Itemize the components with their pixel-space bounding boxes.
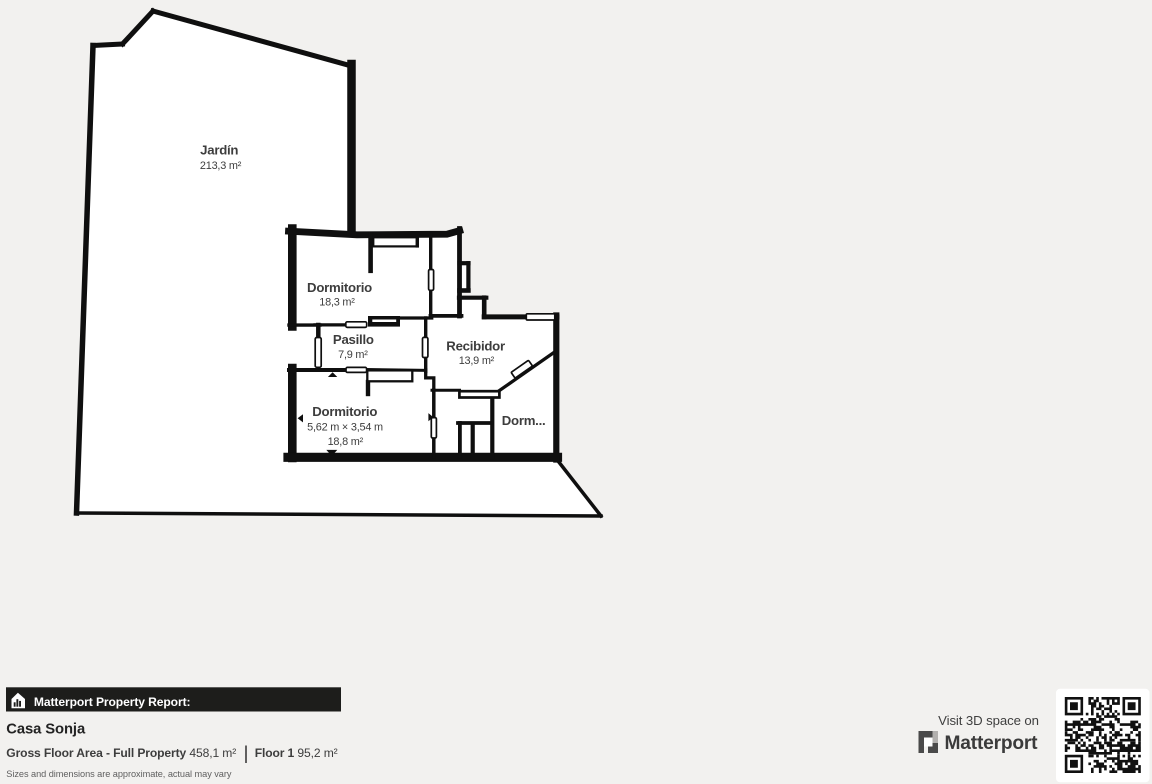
svg-text:18,8 m²: 18,8 m² xyxy=(328,436,364,448)
svg-text:5,62 m × 3,54 m: 5,62 m × 3,54 m xyxy=(307,422,383,434)
svg-text:Matterport: Matterport xyxy=(945,733,1039,754)
svg-text:Gross Floor Area - Full Proper: Gross Floor Area - Full Property 458,1 m… xyxy=(6,746,236,760)
svg-text:Casa Sonja: Casa Sonja xyxy=(6,722,86,738)
svg-text:Recibidor: Recibidor xyxy=(446,338,505,353)
svg-text:18,3 m²: 18,3 m² xyxy=(319,297,355,309)
svg-text:213,3 m²: 213,3 m² xyxy=(200,160,242,172)
svg-text:7,9 m²: 7,9 m² xyxy=(338,349,368,361)
svg-text:Dorm...: Dorm... xyxy=(502,413,546,428)
svg-text:Dormitorio: Dormitorio xyxy=(312,404,377,419)
svg-text:Visit 3D space on: Visit 3D space on xyxy=(938,713,1039,728)
svg-text:Jardín: Jardín xyxy=(200,143,238,158)
svg-text:Floor 1 95,2 m²: Floor 1 95,2 m² xyxy=(255,746,338,760)
svg-text:13,9 m²: 13,9 m² xyxy=(459,355,495,367)
svg-text:Dormitorio: Dormitorio xyxy=(307,280,372,295)
svg-text:Sizes and dimensions are appro: Sizes and dimensions are approximate, ac… xyxy=(6,769,232,779)
svg-text:Pasillo: Pasillo xyxy=(333,332,374,347)
svg-text:Matterport Property Report:: Matterport Property Report: xyxy=(34,695,191,709)
